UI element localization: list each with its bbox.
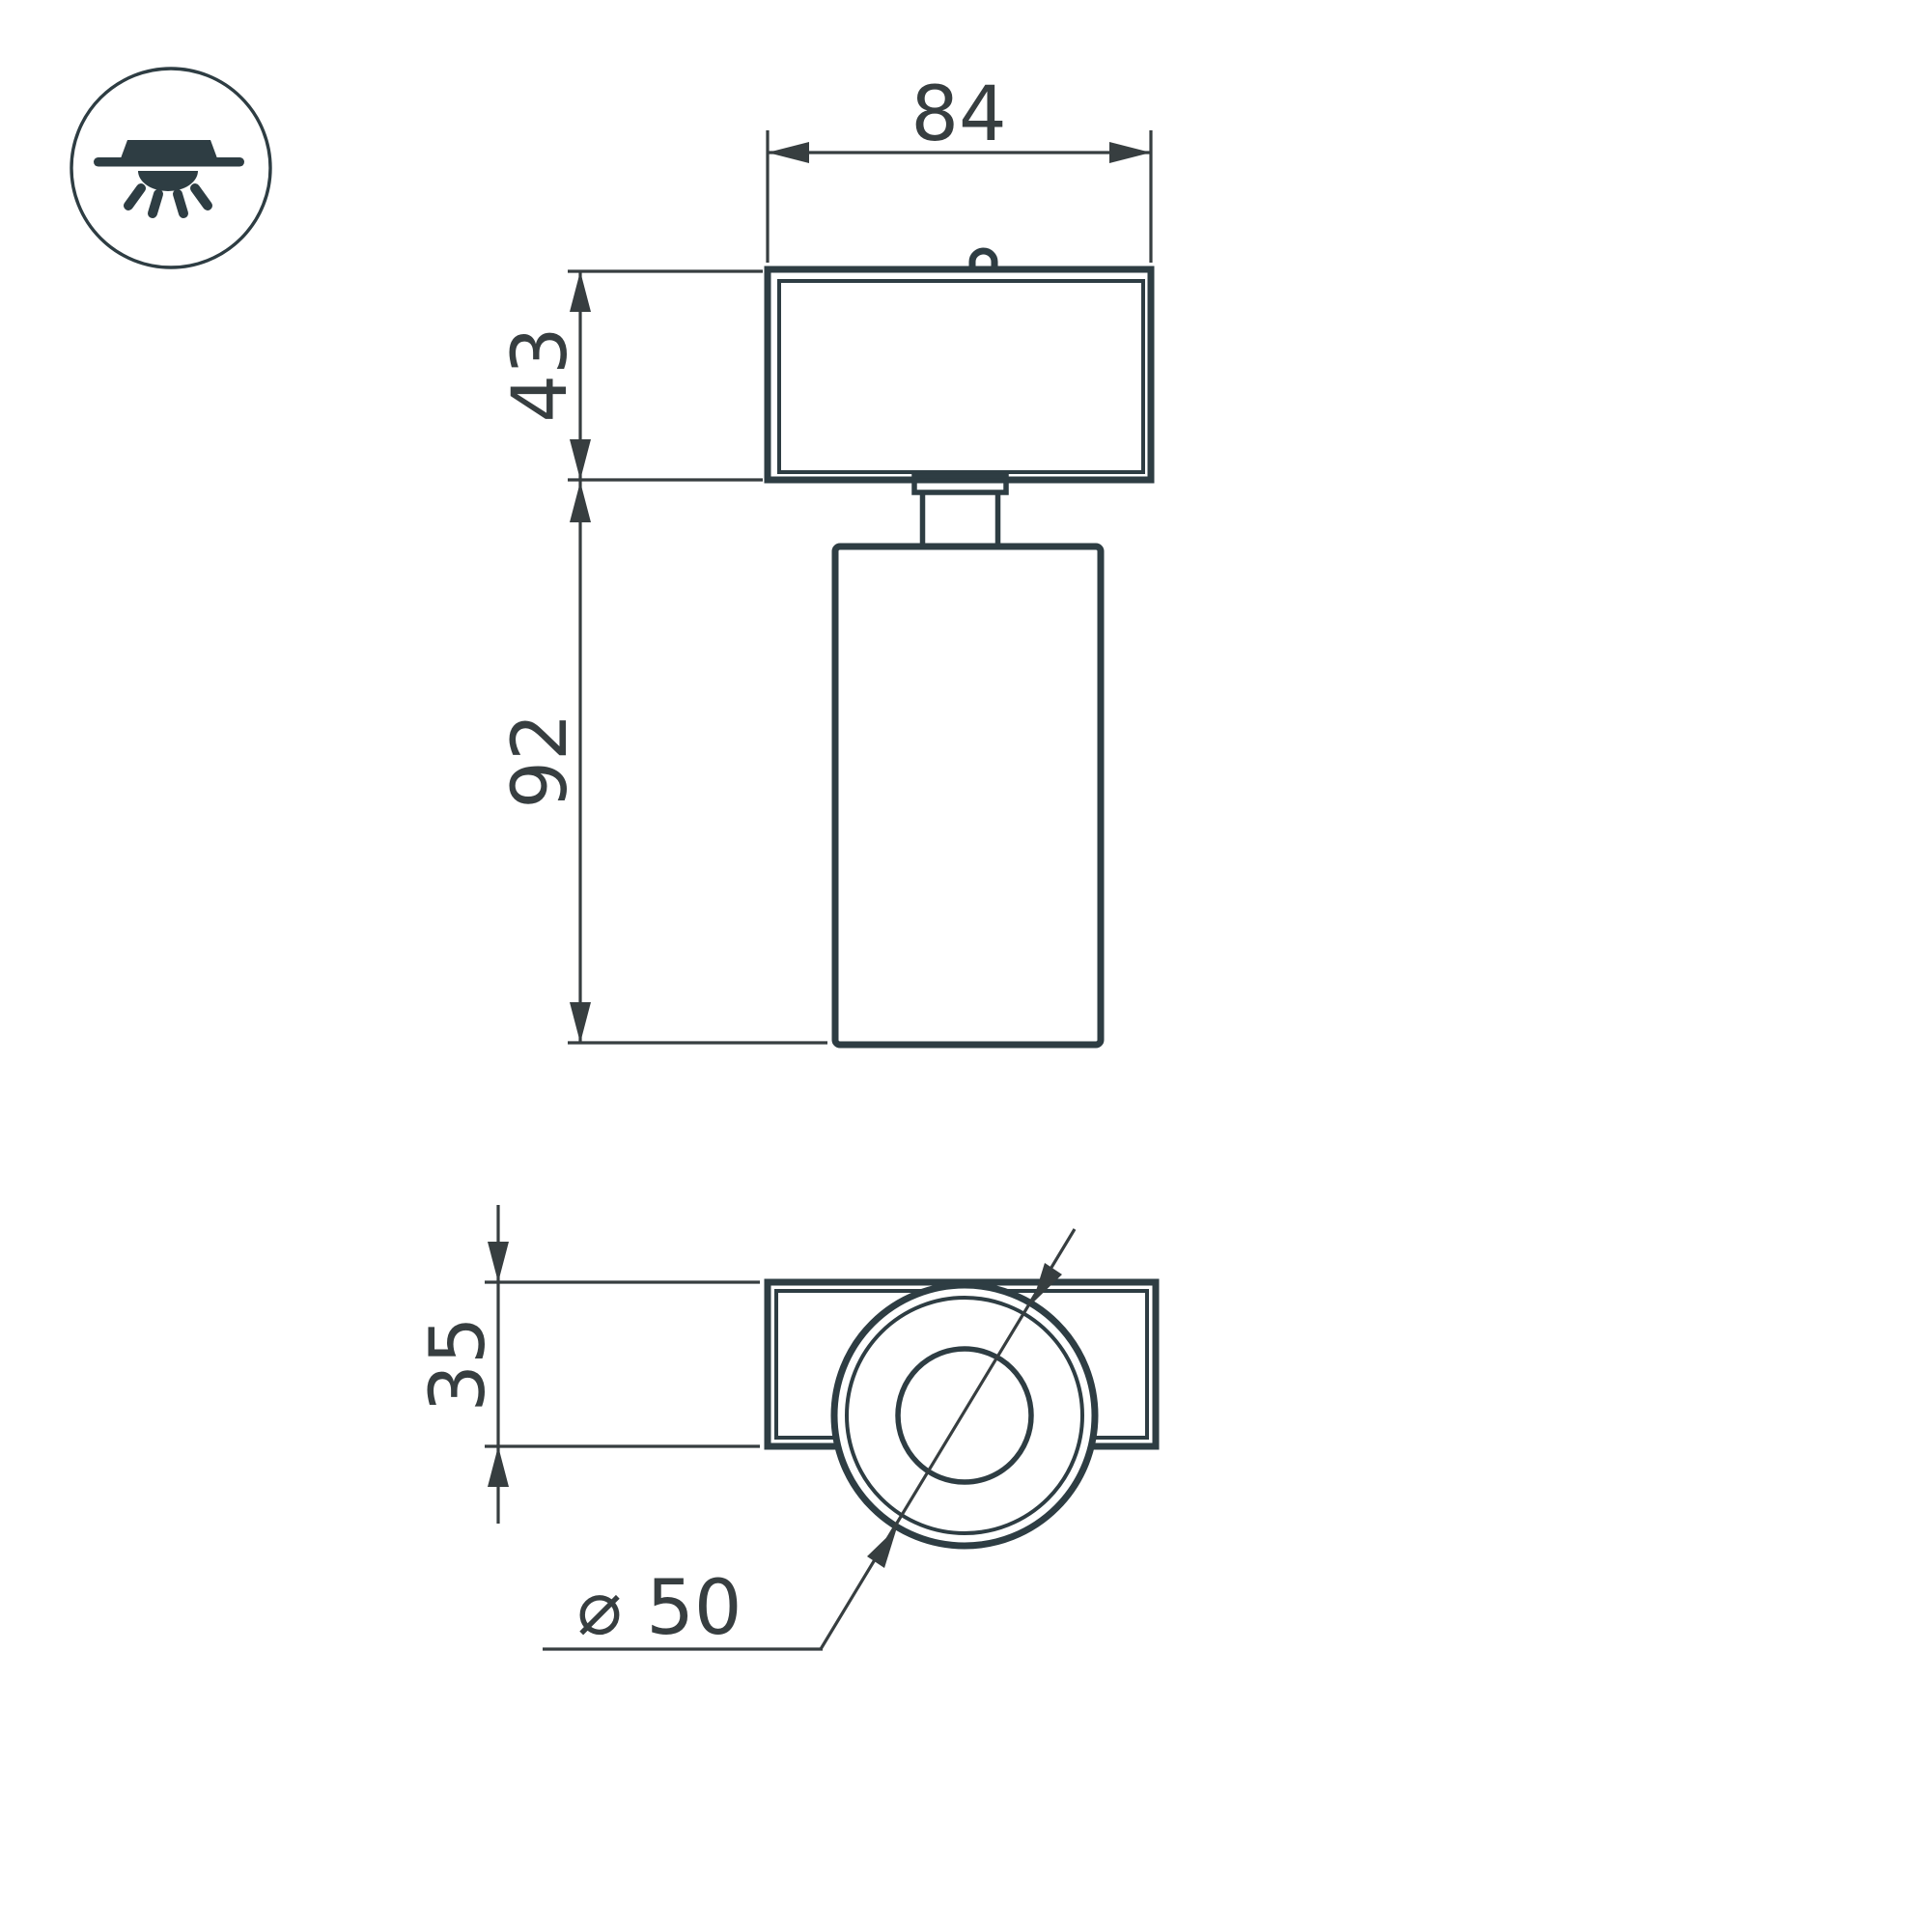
dimension-body-height-92: 92 [497, 480, 827, 1043]
arrowhead-up [488, 1446, 509, 1487]
dimension-width-84: 84 [768, 71, 1151, 263]
head-outer-circle [834, 1285, 1095, 1546]
arrowhead-up [570, 271, 591, 312]
cylinder-body [835, 546, 1101, 1045]
icon-ceiling-bar [94, 157, 244, 167]
bottom-view: 35 ⌀ 50 [415, 1205, 1156, 1652]
front-view: 84 43 92 [497, 71, 1151, 1045]
dimension-label-diameter: ⌀ 50 [576, 1565, 742, 1652]
dimension-label-43: 43 [497, 326, 584, 422]
swivel-flange [914, 476, 1006, 492]
dimension-label-84: 84 [910, 71, 1006, 158]
arrowhead-down [488, 1242, 509, 1282]
arrowhead-up [570, 482, 591, 522]
dimension-label-92: 92 [497, 713, 584, 808]
arrowhead-right [1109, 142, 1151, 163]
icon-lamp-dome [138, 171, 198, 191]
icon-luminaire-body [121, 140, 217, 158]
icon-light-ray-3 [178, 194, 183, 213]
surface-mount-ceiling-light-icon [71, 69, 270, 267]
base-outline [768, 269, 1151, 480]
icon-light-ray-4 [195, 188, 208, 206]
dimension-label-35: 35 [415, 1316, 502, 1412]
arrowhead-down [570, 1002, 591, 1043]
arrowhead-left [768, 142, 809, 163]
technical-drawing: 84 43 92 [0, 0, 1932, 1932]
dimension-plate-depth-35: 35 [415, 1205, 760, 1524]
arrowhead-down [570, 439, 591, 480]
dimension-base-height-43: 43 [497, 271, 763, 480]
icon-light-ray-2 [153, 194, 158, 213]
icon-circle [71, 69, 270, 267]
icon-light-ray-1 [128, 188, 141, 206]
arrowhead-lower [867, 1527, 897, 1568]
